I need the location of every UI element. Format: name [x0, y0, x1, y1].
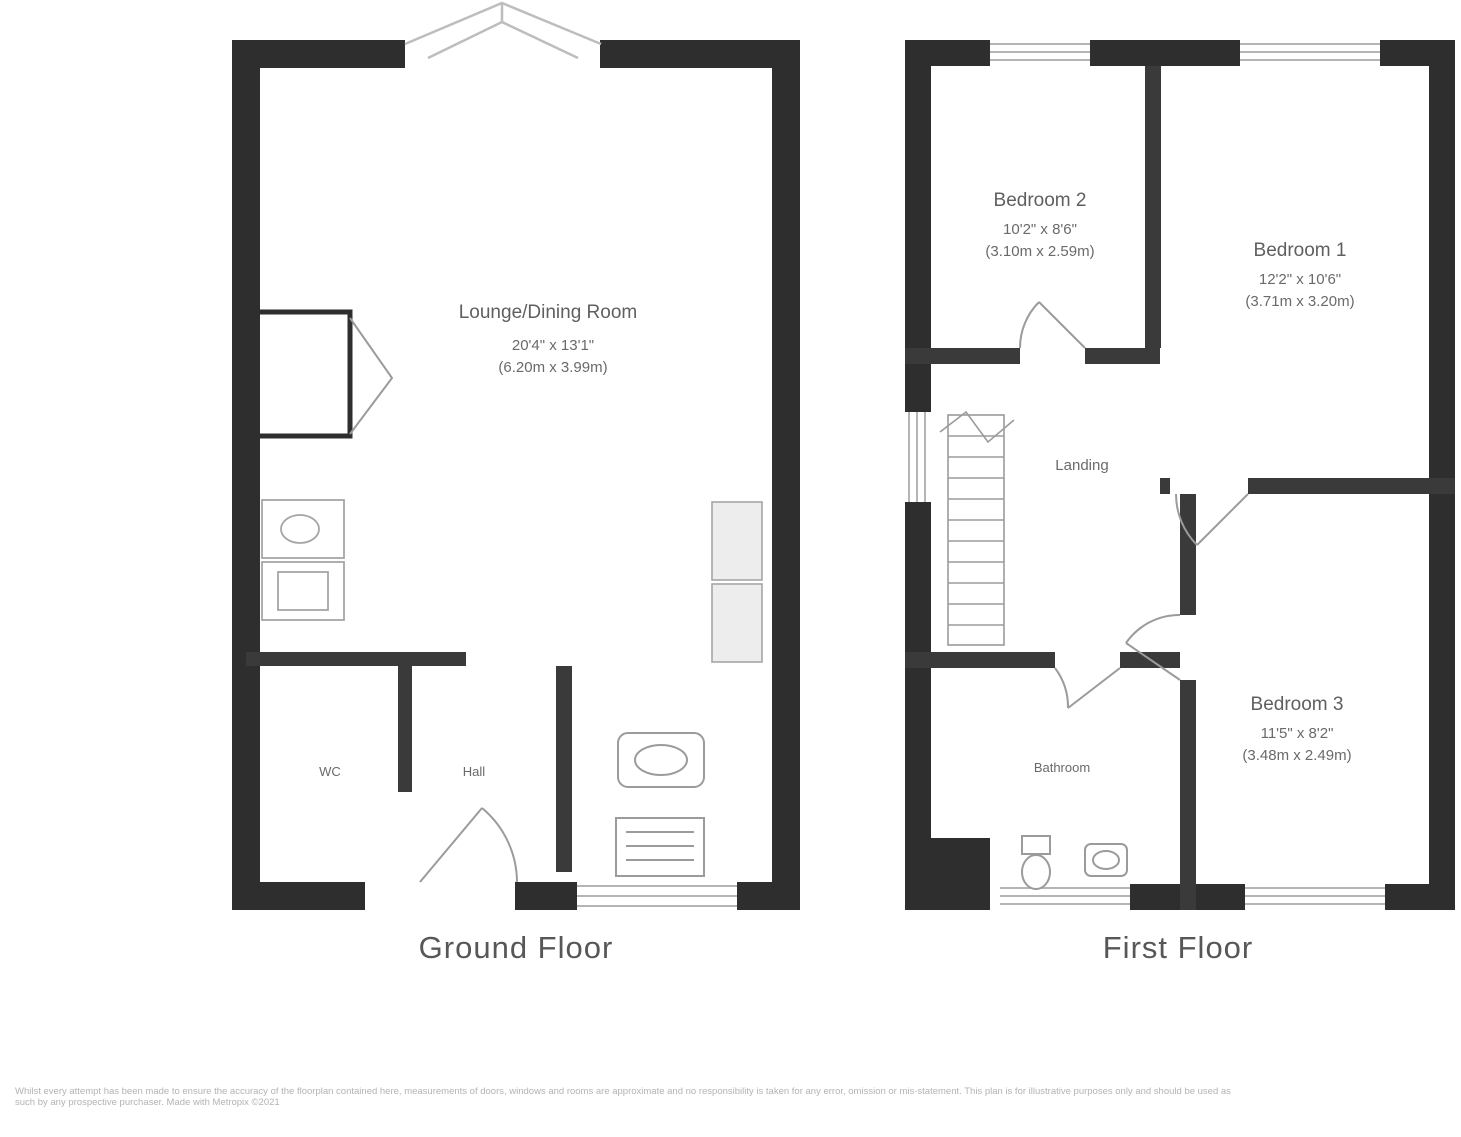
- ground-interior-walls: [246, 652, 572, 872]
- hall-label: Hall: [463, 764, 486, 779]
- ground-floor-caption: Ground Floor: [419, 930, 614, 965]
- front-door-swing: [420, 808, 517, 882]
- entrance-recess: [260, 312, 392, 436]
- washbasin-icon: [1085, 844, 1127, 876]
- bedroom2-dims-imperial: 10'2" x 8'6": [1003, 221, 1077, 238]
- staircase: [940, 412, 1014, 645]
- landing-label: Landing: [1055, 457, 1108, 474]
- toilet-icon: [1022, 836, 1050, 889]
- lounge-name: Lounge/Dining Room: [459, 302, 638, 323]
- lounge-dims-imperial: 20'4" x 13'1": [512, 337, 594, 354]
- lounge-dims-metric: (6.20m x 3.99m): [498, 359, 607, 376]
- bathroom-label: Bathroom: [1034, 760, 1090, 775]
- bedroom1-dims-imperial: 12'2" x 10'6": [1259, 271, 1341, 288]
- bedroom2-name: Bedroom 2: [994, 190, 1087, 211]
- disclaimer-text: Whilst every attempt has been made to en…: [15, 1086, 1247, 1109]
- ground-floor-plan: Lounge/Dining Room 20'4" x 13'1" (6.20m …: [232, 3, 800, 965]
- bedroom2-dims-metric: (3.10m x 2.59m): [985, 243, 1094, 260]
- bedroom3-dims-metric: (3.48m x 2.49m): [1242, 747, 1351, 764]
- bay-window: [405, 3, 601, 58]
- ground-window-bottom: [577, 886, 737, 906]
- first-floor-plan: Bedroom 2 10'2" x 8'6" (3.10m x 2.59m) B…: [905, 40, 1455, 965]
- cooker-icon: [616, 818, 704, 876]
- ground-exterior-walls: [232, 40, 800, 910]
- first-floor-caption: First Floor: [1103, 930, 1254, 965]
- wc-label: WC: [319, 764, 341, 779]
- floorplan-drawing: Lounge/Dining Room 20'4" x 13'1" (6.20m …: [0, 0, 1461, 1137]
- bathroom-door-swing: [1055, 668, 1120, 708]
- bedroom3-name: Bedroom 3: [1251, 694, 1344, 715]
- bedroom1-dims-metric: (3.71m x 3.20m): [1245, 293, 1354, 310]
- bedroom3-dims-imperial: 11'5" x 8'2": [1261, 725, 1334, 742]
- floorplan-page: Lounge/Dining Room 20'4" x 13'1" (6.20m …: [0, 0, 1461, 1137]
- bedroom1-name: Bedroom 1: [1254, 240, 1347, 261]
- sink-icon: [618, 733, 704, 787]
- stairs-block: [712, 502, 762, 662]
- bedroom3-door-swing: [1126, 615, 1180, 680]
- bedroom2-door-swing: [1020, 302, 1085, 348]
- kitchen-units: [262, 500, 344, 620]
